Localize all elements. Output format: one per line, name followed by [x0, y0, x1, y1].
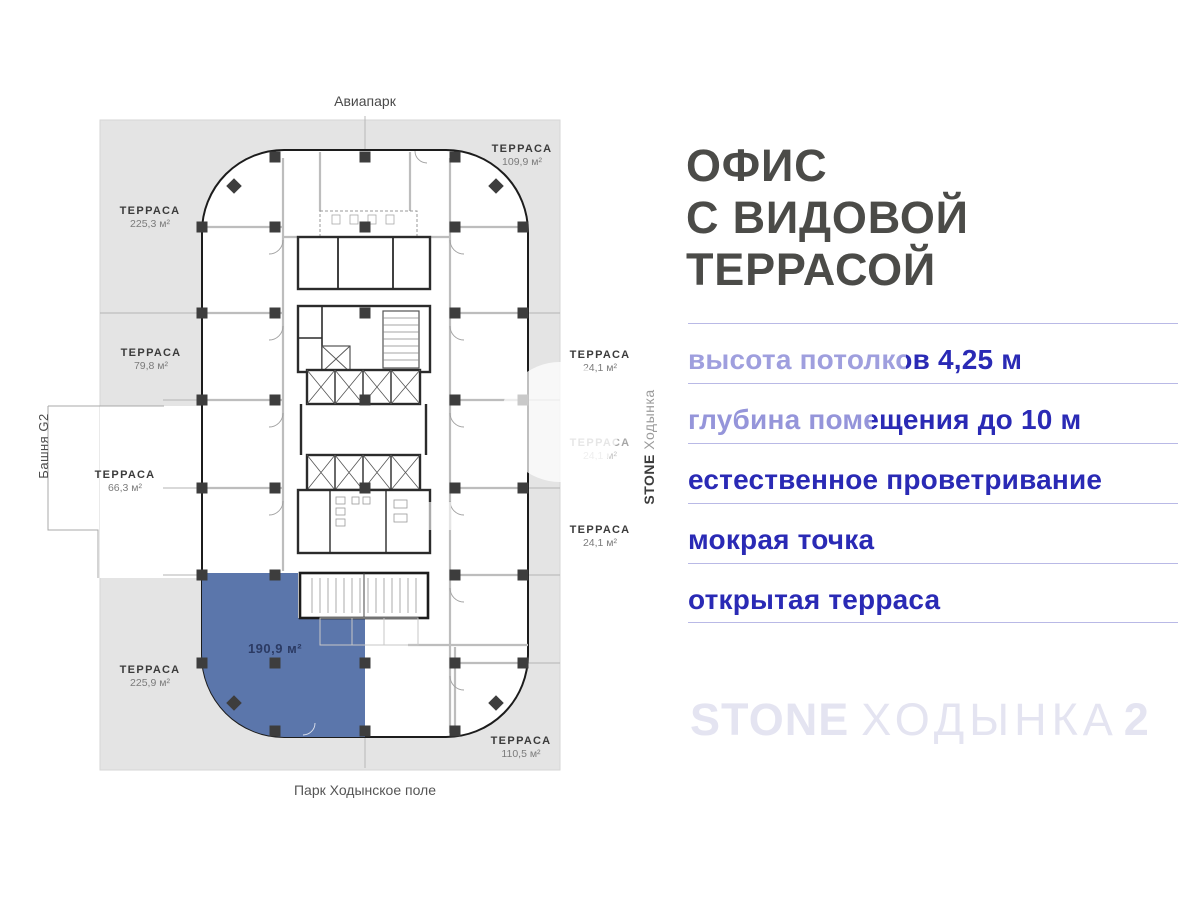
page-title-line-1: ОФИС [686, 140, 969, 192]
terrace-title: ТЕРРАСА [95, 664, 205, 676]
page-title-line-2: С ВИДОВОЙ [686, 192, 969, 244]
feature-text: естественное проветривание [688, 464, 1102, 496]
highlighted-unit-area-label: 190,9 м² [228, 641, 322, 656]
feature-text: открытая терраса [688, 584, 940, 616]
logo-number: 2 [1124, 694, 1149, 746]
terrace-area: 24,1 м² [545, 450, 655, 462]
terrace-label-24-1-a: ТЕРРАСА 24,1 м² [545, 349, 655, 374]
context-label-aviapark: Авиапарк [265, 93, 465, 109]
terrace-title: ТЕРРАСА [545, 437, 655, 449]
feature-text: мокрая точка [688, 524, 874, 556]
feature-row-open-terrace: открытая терраса [688, 563, 1178, 623]
feature-row-ceiling-height: высота потолков 4,25 м [688, 323, 1178, 383]
terrace-label-24-1-b: ТЕРРАСА 24,1 м² [545, 437, 655, 462]
terrace-area: 225,9 м² [95, 677, 205, 689]
logo-brand: STONE [690, 694, 849, 746]
developer-logo: STONE ХОДЫНКА 2 [690, 694, 1149, 746]
terrace-label-109-9: ТЕРРАСА 109,9 м² [467, 143, 577, 168]
terrace-title: ТЕРРАСА [95, 205, 205, 217]
terrace-title: ТЕРРАСА [70, 469, 180, 481]
terrace-area: 79,8 м² [96, 360, 206, 372]
page-title: ОФИС С ВИДОВОЙ ТЕРРАСОЙ [686, 140, 969, 296]
terrace-area: 24,1 м² [545, 362, 655, 374]
terrace-title: ТЕРРАСА [545, 524, 655, 536]
context-label-tower-g2: Башня G2 [36, 376, 52, 516]
terrace-area: 24,1 м² [545, 537, 655, 549]
feature-row-ventilation: естественное проветривание [688, 443, 1178, 503]
feature-list: высота потолков 4,25 м глубина помещения… [688, 323, 1178, 623]
terrace-area: 110,5 м² [466, 748, 576, 760]
terrace-title: ТЕРРАСА [466, 735, 576, 747]
terrace-label-225-3: ТЕРРАСА 225,3 м² [95, 205, 205, 230]
terrace-label-79-8: ТЕРРАСА 79,8 м² [96, 347, 206, 372]
terrace-title: ТЕРРАСА [467, 143, 577, 155]
terrace-title: ТЕРРАСА [545, 349, 655, 361]
context-label-park: Парк Ходынское поле [245, 782, 485, 798]
page-title-line-3: ТЕРРАСОЙ [686, 244, 969, 296]
feature-text: глубина помещения до 10 м [688, 404, 1081, 436]
feature-text: высота потолков 4,25 м [688, 344, 1022, 376]
terrace-label-24-1-c: ТЕРРАСА 24,1 м² [545, 524, 655, 549]
logo-project: ХОДЫНКА [861, 694, 1118, 746]
terrace-area: 225,3 м² [95, 218, 205, 230]
terrace-area: 109,9 м² [467, 156, 577, 168]
terrace-label-225-9: ТЕРРАСА 225,9 м² [95, 664, 205, 689]
feature-row-depth: глубина помещения до 10 м [688, 383, 1178, 443]
offer-slide: Авиапарк Парк Ходынское поле Башня G2 ST… [0, 0, 1200, 900]
terrace-label-110-5: ТЕРРАСА 110,5 м² [466, 735, 576, 760]
terrace-label-66-3: ТЕРРАСА 66,3 м² [70, 469, 180, 494]
terrace-area: 66,3 м² [70, 482, 180, 494]
terrace-title: ТЕРРАСА [96, 347, 206, 359]
feature-row-wet-point: мокрая точка [688, 503, 1178, 563]
